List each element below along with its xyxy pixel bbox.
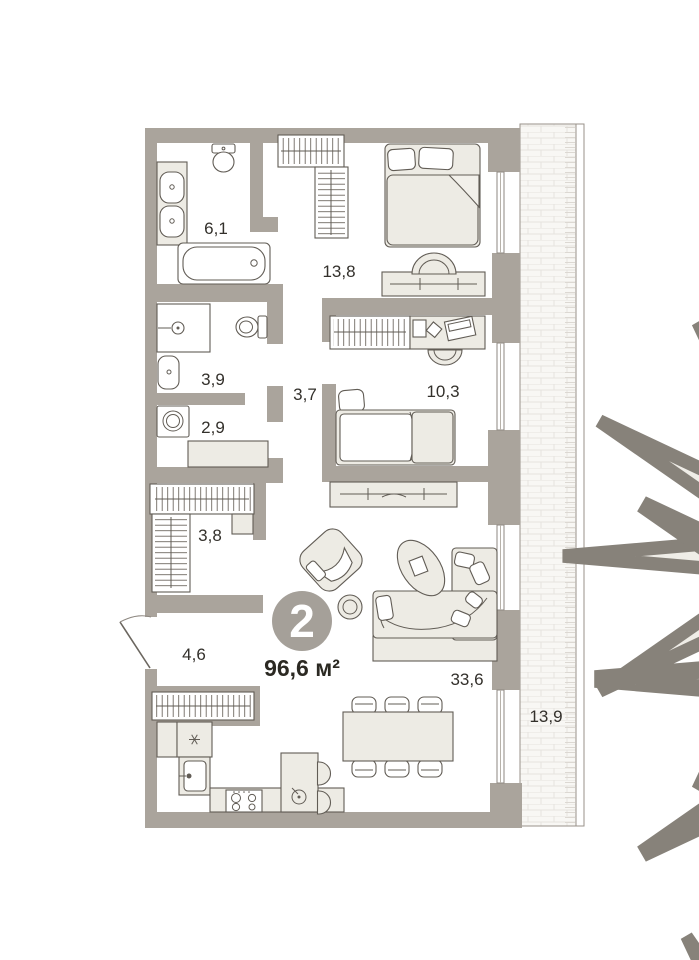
shelf [232, 514, 253, 534]
room-area-label-bathroom: 6,1 [204, 219, 228, 238]
floor-plan-page: 6,1 13,8 3,9 3,7 10,3 2,9 3,8 4,6 33,6 1… [0, 0, 699, 960]
room-area-label-laundry: 2,9 [201, 418, 225, 437]
wardrobe-rack [150, 484, 254, 514]
dining-table-icon [343, 712, 453, 761]
sink-icon [158, 356, 179, 389]
laundry-counter [188, 441, 268, 467]
room-area-label-terrace: 13,9 [529, 707, 562, 726]
desk-icon [410, 316, 485, 349]
chair-icon [352, 760, 376, 777]
room-area-label-bedroom-master: 13,8 [322, 262, 355, 281]
entry-door [120, 616, 157, 669]
room-area-label-bedroom-second: 10,3 [426, 382, 459, 401]
chair-icon [418, 760, 442, 777]
dresser-icon [382, 272, 485, 296]
kitchen-island [281, 753, 318, 812]
entry-closet [146, 686, 260, 726]
room-area-label-entry: 4,6 [182, 645, 206, 664]
cabinet [157, 722, 177, 757]
double-bed-icon [385, 144, 480, 247]
wardrobe-rack [315, 167, 348, 238]
side-table-icon [338, 595, 362, 619]
total-area-label: 96,6 м² [264, 655, 340, 681]
toilet-icon [236, 316, 267, 338]
floor-plan-image: 6,1 13,8 3,9 3,7 10,3 2,9 3,8 4,6 33,6 1… [0, 0, 699, 960]
room-area-label-living: 33,6 [450, 670, 483, 689]
sink-icon [160, 172, 184, 203]
dining-set [343, 697, 453, 777]
plant-icon [563, 286, 699, 826]
bathtub-icon [178, 243, 270, 284]
room-area-label-wardrobe: 3,8 [198, 526, 222, 545]
sink-icon [160, 206, 184, 237]
room-area-label-shower-room: 3,9 [201, 370, 225, 389]
toilet-icon [212, 144, 235, 172]
washing-machine-icon [157, 406, 189, 437]
stove-icon [226, 790, 262, 812]
plant-icon [559, 902, 699, 960]
fridge-icon [177, 722, 212, 757]
room-area-label-hallway: 3,7 [293, 385, 317, 404]
wardrobe-rack [152, 514, 190, 592]
wardrobe-rack [330, 316, 410, 349]
shower-icon [157, 304, 210, 352]
chair-icon [385, 760, 409, 777]
kitchen-sink-icon [179, 757, 210, 795]
terrace [520, 124, 699, 960]
badge-rooms-count: 2 [289, 595, 315, 647]
tv-console-icon [330, 482, 457, 507]
wardrobe-rack [278, 135, 344, 167]
